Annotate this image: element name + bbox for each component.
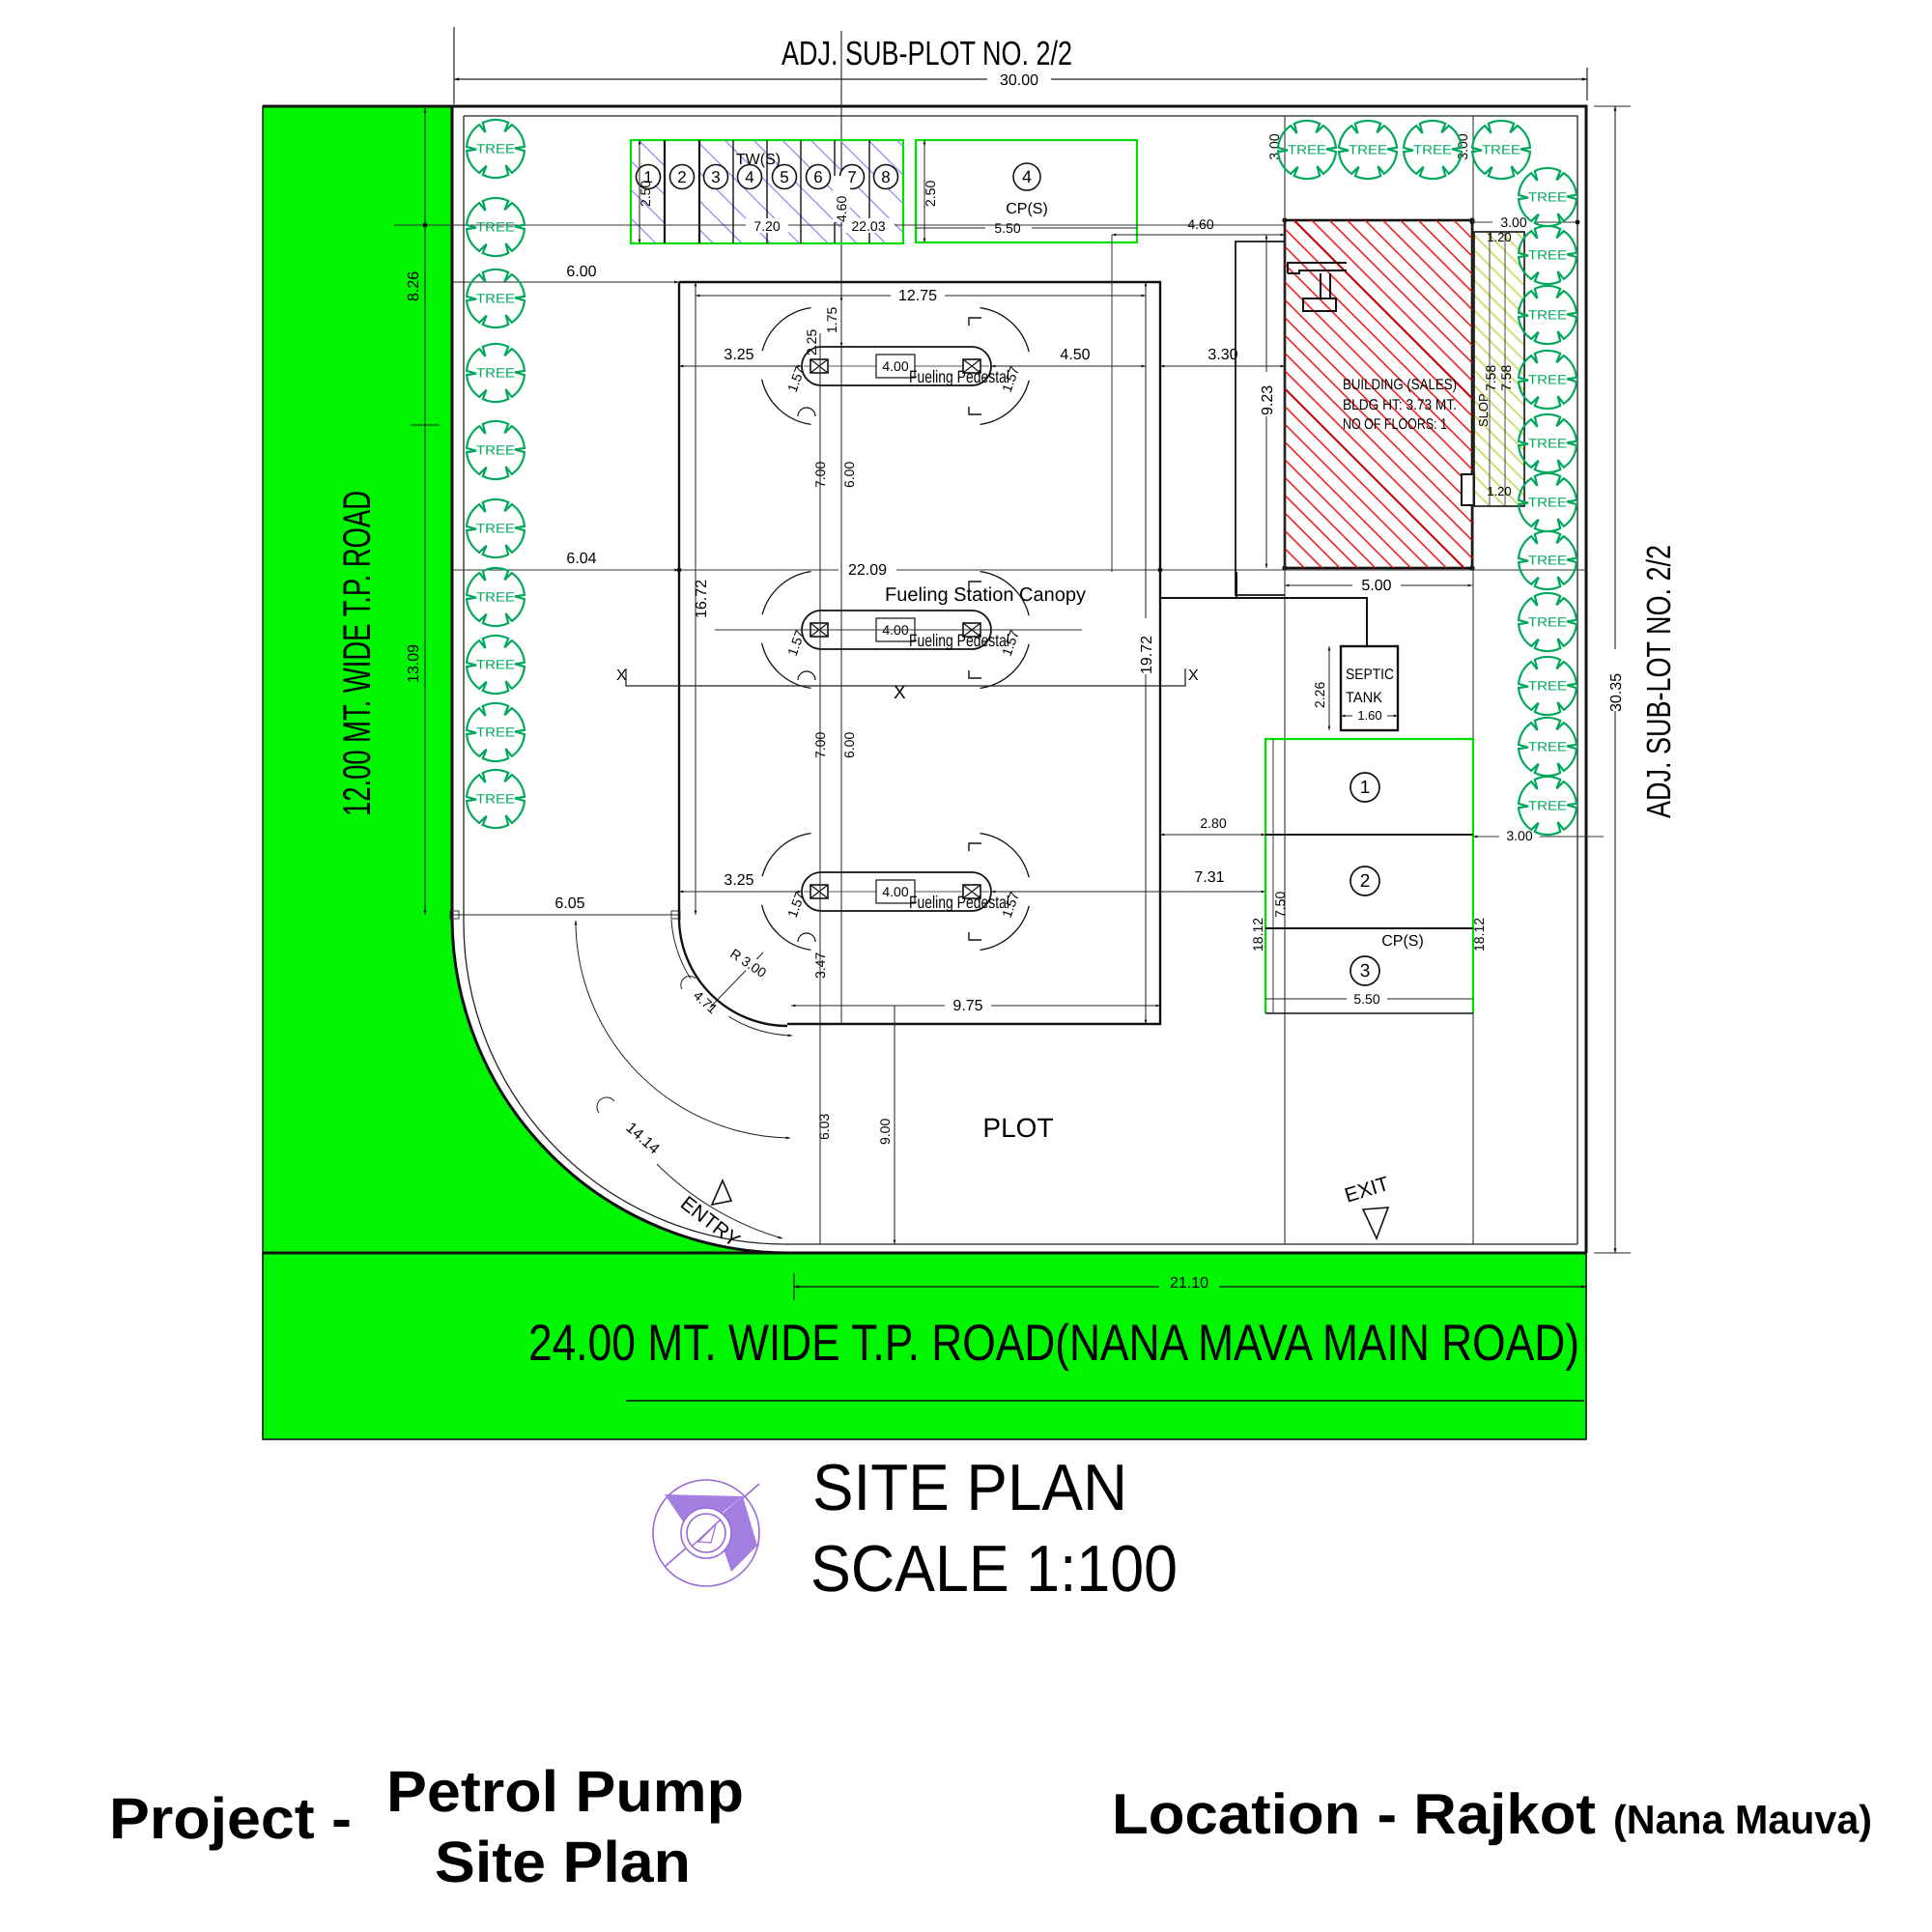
svg-text:3: 3 [1360, 961, 1371, 981]
svg-text:2: 2 [677, 168, 686, 186]
svg-text:1.20: 1.20 [1487, 230, 1511, 244]
svg-text:9.23: 9.23 [1260, 385, 1276, 415]
svg-text:3.00: 3.00 [1500, 214, 1526, 230]
svg-text:9.00: 9.00 [877, 1119, 893, 1145]
svg-text:7.31: 7.31 [1194, 869, 1224, 886]
svg-text:19.72: 19.72 [1139, 636, 1155, 674]
svg-text:Location - Rajkot: Location - Rajkot [1112, 1782, 1596, 1846]
svg-text:SCALE 1:100: SCALE 1:100 [810, 1532, 1178, 1605]
svg-text:BUILDING (SALES): BUILDING (SALES) [1343, 377, 1457, 393]
svg-text:13.09: 13.09 [406, 644, 422, 683]
svg-text:5: 5 [780, 168, 788, 186]
svg-text:CP(S): CP(S) [1381, 933, 1424, 950]
svg-text:9.75: 9.75 [952, 998, 982, 1014]
svg-text:7.58: 7.58 [1498, 365, 1514, 391]
svg-text:3.25: 3.25 [724, 872, 753, 889]
svg-text:1: 1 [1360, 778, 1371, 798]
svg-text:18.12: 18.12 [1471, 918, 1487, 952]
svg-text:2: 2 [1360, 871, 1371, 892]
svg-text:6: 6 [813, 168, 822, 186]
svg-text:1.60: 1.60 [1357, 708, 1381, 723]
svg-text:6.05: 6.05 [554, 895, 584, 912]
svg-text:7.50: 7.50 [1272, 892, 1288, 918]
svg-text:Site Plan: Site Plan [435, 1830, 691, 1894]
svg-text:4.60: 4.60 [1187, 216, 1213, 232]
svg-text:30.35: 30.35 [1608, 673, 1625, 712]
svg-text:8.26: 8.26 [406, 271, 422, 301]
svg-text:(Nana Mauva): (Nana Mauva) [1613, 1797, 1872, 1842]
svg-text:3.30: 3.30 [1207, 347, 1237, 363]
svg-text:5.50: 5.50 [994, 220, 1020, 236]
svg-text:2.25: 2.25 [804, 329, 819, 355]
svg-text:6.00: 6.00 [841, 732, 857, 758]
svg-text:TW(S): TW(S) [736, 152, 781, 168]
svg-text:BLDG HT: 3.73 MT.: BLDG HT: 3.73 MT. [1343, 397, 1457, 413]
svg-text:3.00: 3.00 [1506, 828, 1532, 843]
svg-text:4: 4 [1022, 167, 1032, 186]
svg-text:SLOP: SLOP [1476, 393, 1491, 427]
svg-text:5.00: 5.00 [1361, 578, 1391, 594]
svg-text:ADJ. SUB-LOT NO. 2/2: ADJ. SUB-LOT NO. 2/2 [1640, 545, 1678, 818]
svg-text:X: X [894, 683, 906, 703]
svg-text:2.50: 2.50 [638, 181, 653, 207]
svg-text:4.60: 4.60 [834, 196, 849, 222]
svg-text:5.50: 5.50 [1353, 991, 1379, 1007]
svg-text:2.50: 2.50 [923, 181, 938, 207]
svg-text:3: 3 [711, 168, 720, 186]
svg-text:3.47: 3.47 [812, 952, 828, 979]
svg-text:X: X [1188, 668, 1199, 684]
svg-text:7.00: 7.00 [812, 732, 828, 758]
svg-text:16.72: 16.72 [694, 580, 710, 618]
svg-text:30.00: 30.00 [1000, 72, 1038, 89]
svg-text:Fueling Pedestal: Fueling Pedestal [909, 367, 1009, 386]
svg-text:X: X [616, 668, 627, 684]
svg-text:SEPTIC: SEPTIC [1346, 667, 1394, 683]
svg-text:CP(S): CP(S) [1006, 201, 1048, 217]
svg-text:7.20: 7.20 [753, 218, 780, 234]
svg-text:NO OF FLOORS: 1: NO OF FLOORS: 1 [1343, 416, 1447, 433]
svg-text:6.03: 6.03 [816, 1114, 832, 1140]
svg-text:4.50: 4.50 [1060, 347, 1090, 363]
svg-text:Fueling Pedestal: Fueling Pedestal [909, 631, 1009, 650]
svg-text:SITE PLAN: SITE PLAN [812, 1451, 1127, 1524]
svg-text:24.00 MT. WIDE T.P. ROAD(NANA: 24.00 MT. WIDE T.P. ROAD(NANA MAVA MAIN … [528, 1315, 1579, 1372]
svg-text:Fueling Pedestal: Fueling Pedestal [909, 893, 1009, 912]
svg-text:6.04: 6.04 [566, 551, 596, 567]
svg-text:3.25: 3.25 [724, 347, 753, 363]
svg-text:21.10: 21.10 [1170, 1275, 1208, 1292]
svg-text:TANK: TANK [1346, 690, 1383, 706]
svg-text:4: 4 [745, 168, 753, 186]
svg-text:22.03: 22.03 [851, 218, 885, 234]
svg-text:Project -: Project - [109, 1786, 352, 1851]
svg-text:8: 8 [881, 168, 890, 186]
svg-text:7.00: 7.00 [812, 462, 828, 488]
svg-text:Petrol Pump: Petrol Pump [386, 1759, 744, 1824]
svg-text:22.09: 22.09 [848, 562, 887, 579]
svg-text:ADJ. SUB-PLOT NO. 2/2: ADJ. SUB-PLOT NO. 2/2 [781, 35, 1072, 72]
svg-text:2.26: 2.26 [1312, 682, 1327, 708]
svg-text:1.75: 1.75 [824, 307, 839, 333]
svg-text:Fueling Station Canopy: Fueling Station Canopy [885, 584, 1086, 606]
svg-text:18.12: 18.12 [1250, 918, 1265, 952]
svg-text:6.00: 6.00 [841, 462, 857, 488]
svg-text:3.00: 3.00 [1455, 133, 1470, 159]
svg-text:6.00: 6.00 [566, 264, 596, 280]
svg-text:12.75: 12.75 [898, 288, 937, 304]
svg-text:PLOT: PLOT [982, 1113, 1053, 1143]
svg-text:2.80: 2.80 [1200, 815, 1226, 831]
svg-text:12.00 MT. WIDE T.P. ROAD: 12.00 MT. WIDE T.P. ROAD [336, 491, 379, 816]
svg-text:4.00: 4.00 [882, 884, 908, 899]
svg-text:7.58: 7.58 [1483, 365, 1498, 391]
svg-text:1.20: 1.20 [1487, 484, 1511, 498]
svg-text:4.00: 4.00 [882, 358, 908, 374]
